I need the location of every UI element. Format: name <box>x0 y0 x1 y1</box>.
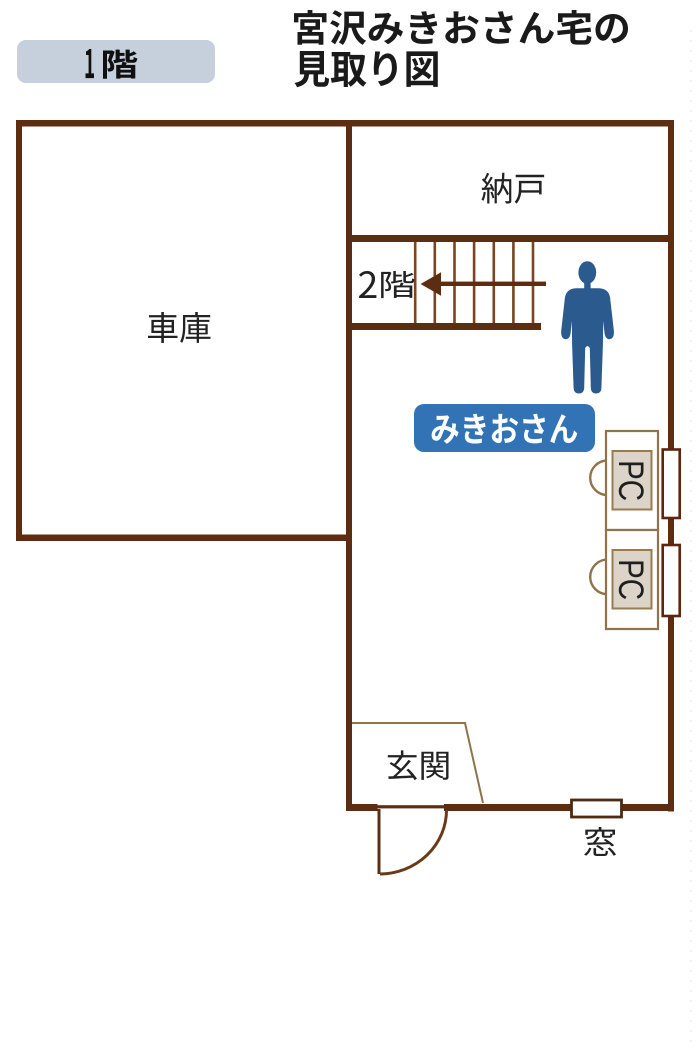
svg-text:PC: PC <box>611 460 650 501</box>
svg-text:PC: PC <box>611 559 650 600</box>
